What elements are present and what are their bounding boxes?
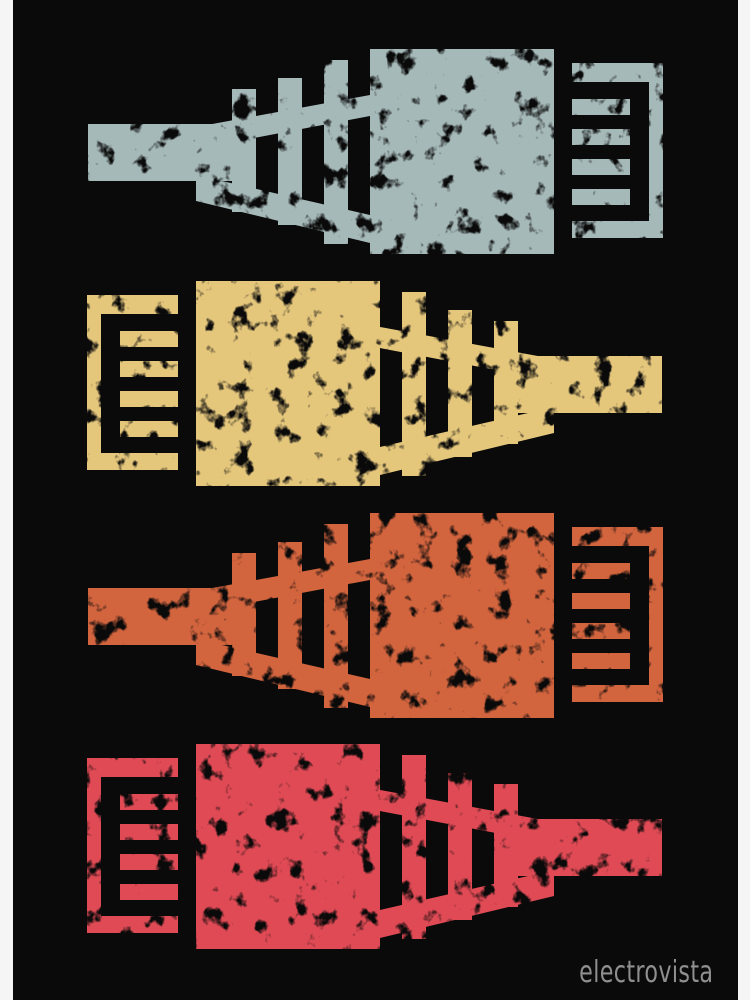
connector-canvas [13, 0, 738, 1000]
page-background: electrovista [0, 0, 750, 1000]
watermark-text: electrovista [579, 955, 713, 990]
ethernet-plug-2 [87, 281, 662, 486]
ethernet-plug-1 [88, 49, 663, 254]
artwork-panel: electrovista [13, 0, 738, 1000]
ethernet-plug-4 [87, 744, 662, 949]
ethernet-plug-3 [88, 513, 663, 718]
